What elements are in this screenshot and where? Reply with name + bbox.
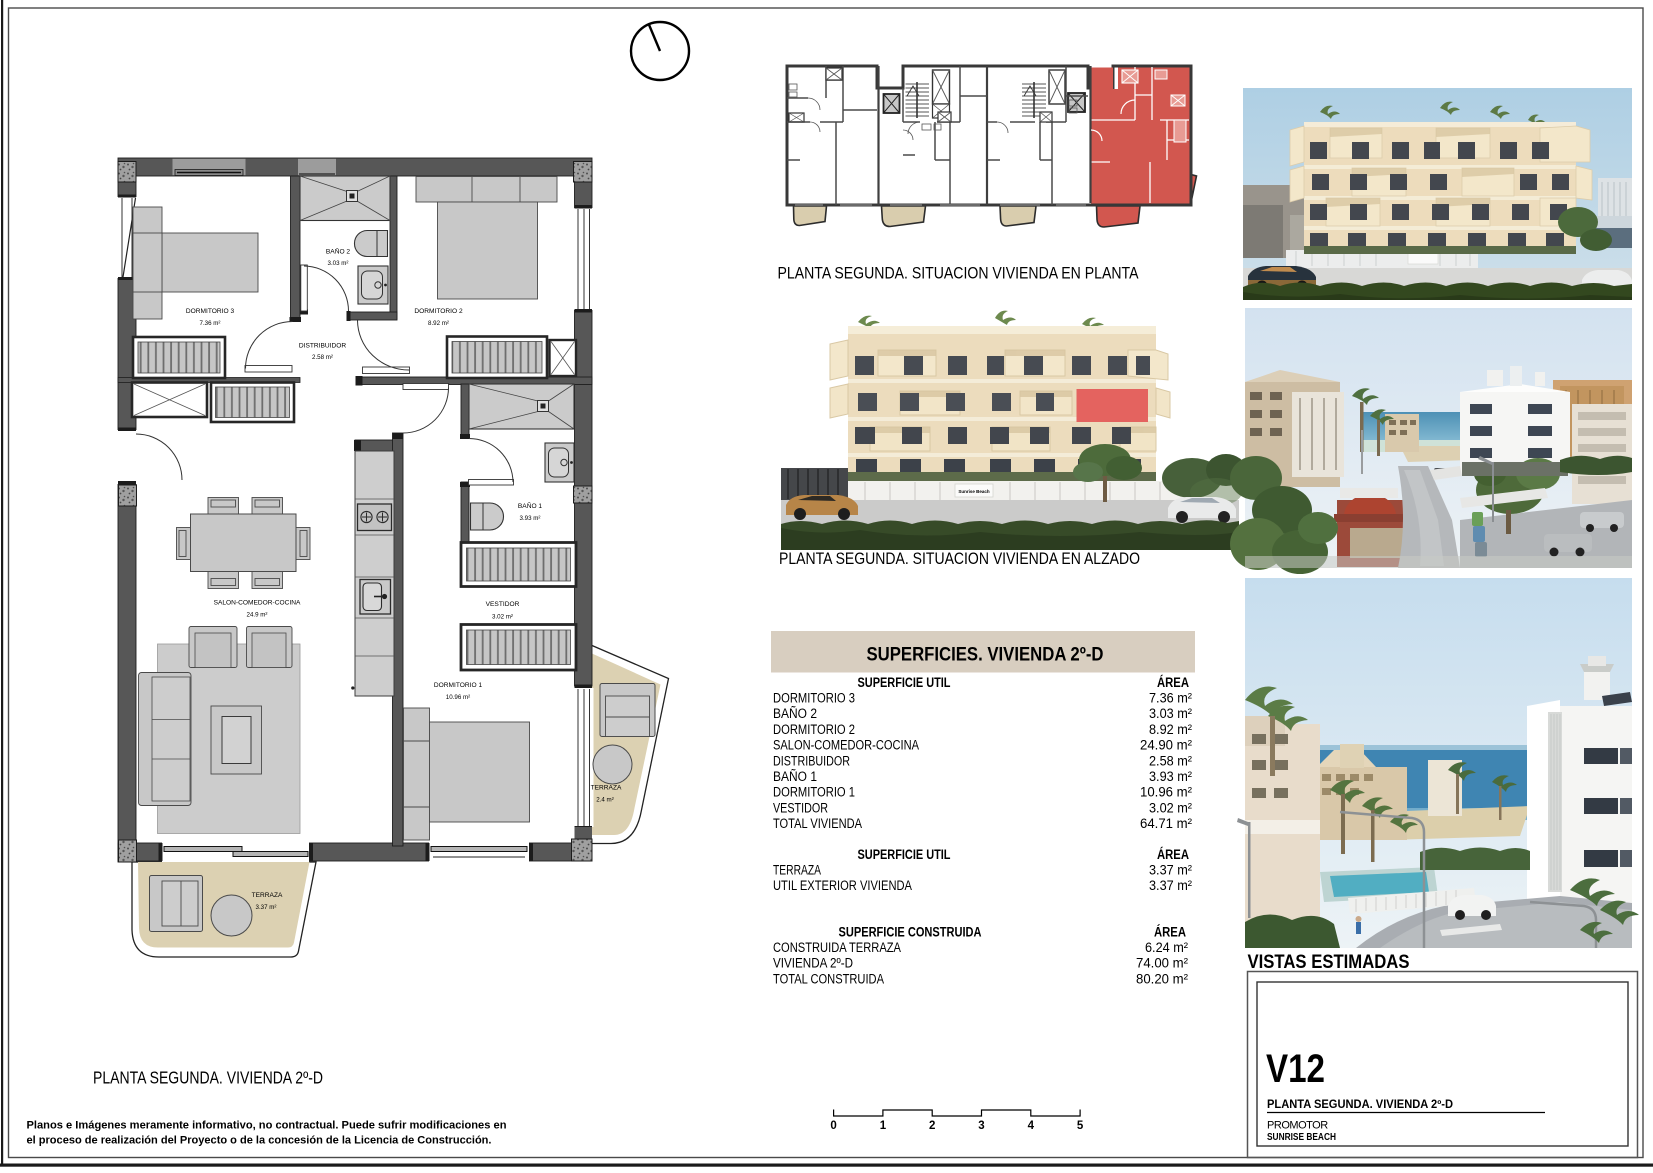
svg-text:DORMITORIO 1: DORMITORIO 1 [434, 682, 483, 689]
svg-text:VIVIENDA 2º-D: VIVIENDA 2º-D [773, 956, 853, 971]
svg-text:64.71 m²: 64.71 m² [1140, 816, 1192, 831]
svg-text:PLANTA SEGUNDA. VIVIENDA 2º-D: PLANTA SEGUNDA. VIVIENDA 2º-D [93, 1068, 323, 1088]
svg-text:3.03 m²: 3.03 m² [1149, 706, 1192, 721]
svg-text:ÁREA: ÁREA [1157, 675, 1189, 690]
svg-text:80.20 m²: 80.20 m² [1136, 971, 1188, 986]
svg-text:Planos e Imágenes meramente in: Planos e Imágenes meramente informativo,… [27, 1119, 507, 1131]
svg-text:SUPERFICIE UTIL: SUPERFICIE UTIL [858, 847, 951, 862]
svg-text:DORMITORIO 2: DORMITORIO 2 [773, 722, 855, 737]
svg-text:3: 3 [978, 1120, 984, 1132]
svg-text:TERRAZA: TERRAZA [591, 785, 622, 792]
svg-text:24.9 m²: 24.9 m² [247, 612, 268, 619]
svg-text:TERRAZA: TERRAZA [773, 863, 821, 878]
svg-text:SUPERFICIE CONSTRUIDA: SUPERFICIE CONSTRUIDA [839, 924, 982, 939]
svg-text:5: 5 [1077, 1120, 1084, 1132]
svg-text:VESTIDOR: VESTIDOR [773, 800, 828, 815]
svg-text:2.58 m²: 2.58 m² [1149, 753, 1192, 768]
svg-text:ÁREA: ÁREA [1154, 924, 1186, 939]
svg-text:7.36 m²: 7.36 m² [1149, 691, 1192, 706]
svg-text:VISTAS ESTIMADAS: VISTAS ESTIMADAS [1248, 952, 1410, 973]
svg-text:PLANTA SEGUNDA. VIVIENDA 2º-D: PLANTA SEGUNDA. VIVIENDA 2º-D [1267, 1099, 1453, 1111]
svg-text:VESTIDOR: VESTIDOR [486, 601, 520, 608]
svg-text:DISTRIBUIDOR: DISTRIBUIDOR [299, 343, 346, 350]
svg-text:UTIL EXTERIOR VIVIENDA: UTIL EXTERIOR VIVIENDA [773, 878, 912, 893]
svg-text:V12: V12 [1266, 1047, 1325, 1091]
svg-text:1: 1 [880, 1120, 887, 1132]
svg-text:2.4 m²: 2.4 m² [596, 797, 614, 804]
svg-text:BAÑO 1: BAÑO 1 [773, 769, 817, 784]
svg-text:SUNRISE BEACH: SUNRISE BEACH [1267, 1131, 1336, 1143]
svg-text:DISTRIBUIDOR: DISTRIBUIDOR [773, 753, 850, 768]
svg-text:DORMITORIO 3: DORMITORIO 3 [186, 308, 235, 315]
svg-text:4: 4 [1028, 1120, 1035, 1132]
svg-text:DORMITORIO 1: DORMITORIO 1 [773, 785, 855, 800]
svg-text:24.90 m²: 24.90 m² [1140, 738, 1192, 753]
svg-text:74.00 m²: 74.00 m² [1136, 956, 1188, 971]
svg-text:8.92 m²: 8.92 m² [428, 320, 449, 327]
svg-text:TOTAL CONSTRUIDA: TOTAL CONSTRUIDA [773, 971, 884, 986]
svg-text:SALON-COMEDOR-COCINA: SALON-COMEDOR-COCINA [214, 600, 301, 607]
svg-text:3.37 m²: 3.37 m² [1149, 863, 1192, 878]
svg-text:3.93 m²: 3.93 m² [1149, 769, 1192, 784]
svg-text:BAÑO 2: BAÑO 2 [326, 247, 351, 256]
svg-text:10.96 m²: 10.96 m² [446, 694, 470, 701]
svg-text:10.96 m²: 10.96 m² [1140, 785, 1192, 800]
svg-text:7.36 m²: 7.36 m² [200, 320, 221, 327]
svg-text:DORMITORIO 3: DORMITORIO 3 [773, 691, 855, 706]
svg-text:3.03 m²: 3.03 m² [328, 260, 349, 267]
svg-text:3.02 m²: 3.02 m² [1149, 800, 1192, 815]
svg-text:BAÑO 2: BAÑO 2 [773, 706, 817, 721]
svg-text:6.24 m²: 6.24 m² [1145, 940, 1188, 955]
svg-text:PLANTA SEGUNDA. SITUACION VIVI: PLANTA SEGUNDA. SITUACION VIVIENDA EN PL… [778, 264, 1140, 283]
svg-text:SUPERFICIE UTIL: SUPERFICIE UTIL [858, 675, 951, 690]
svg-text:BAÑO 1: BAÑO 1 [518, 501, 543, 510]
svg-text:3.37 m²: 3.37 m² [256, 904, 277, 911]
svg-text:8.92 m²: 8.92 m² [1149, 722, 1192, 737]
svg-text:2: 2 [929, 1120, 935, 1132]
svg-text:SUPERFICIES. VIVIENDA 2º-D: SUPERFICIES. VIVIENDA 2º-D [867, 644, 1104, 666]
svg-text:3.93 m²: 3.93 m² [520, 515, 541, 522]
svg-text:3.37 m²: 3.37 m² [1149, 878, 1192, 893]
svg-text:SALON-COMEDOR-COCINA: SALON-COMEDOR-COCINA [773, 738, 919, 753]
svg-text:el proceso de realización del: el proceso de realización del Proyecto o… [27, 1135, 492, 1147]
svg-text:0: 0 [830, 1120, 836, 1132]
svg-text:TERRAZA: TERRAZA [252, 892, 283, 899]
svg-text:ÁREA: ÁREA [1157, 847, 1189, 862]
svg-text:TOTAL VIVIENDA: TOTAL VIVIENDA [773, 816, 862, 831]
svg-text:PROMOTOR: PROMOTOR [1267, 1120, 1329, 1132]
svg-text:DORMITORIO 2: DORMITORIO 2 [414, 308, 463, 315]
svg-text:CONSTRUIDA TERRAZA: CONSTRUIDA TERRAZA [773, 940, 901, 955]
svg-text:PLANTA SEGUNDA. SITUACION VIVI: PLANTA SEGUNDA. SITUACION VIVIENDA EN AL… [779, 549, 1140, 568]
svg-text:2.58 m²: 2.58 m² [312, 354, 333, 361]
svg-text:3.02 m²: 3.02 m² [492, 614, 513, 621]
svg-text:Sunrise Beach: Sunrise Beach [958, 489, 990, 494]
